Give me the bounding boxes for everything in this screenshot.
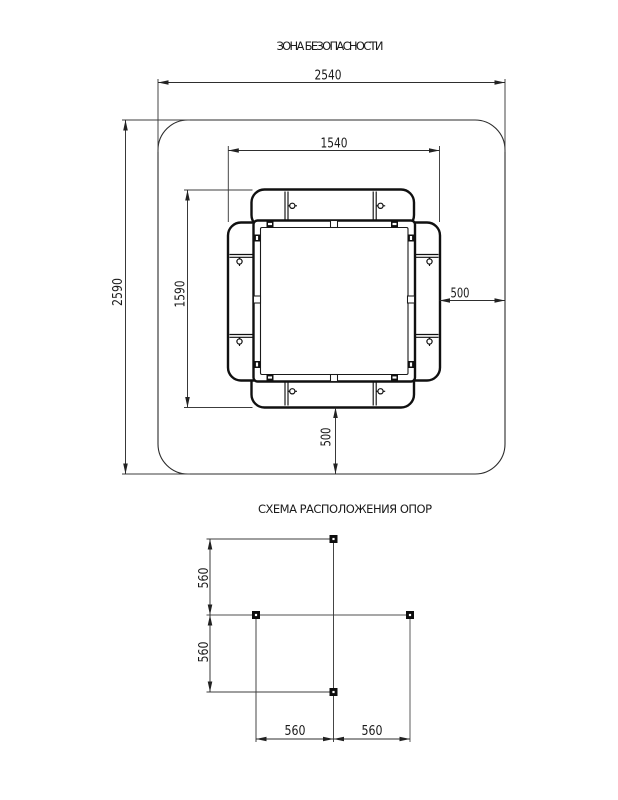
support-post-bottom xyxy=(330,688,338,696)
supports-figure: СХЕМА РАСПОЛОЖЕНИЯ ОПОР xyxy=(197,502,432,742)
dim-label-horizontal-left: 560 xyxy=(285,724,306,739)
support-post-top xyxy=(330,535,338,543)
dim-label-vertical-lower: 560 xyxy=(197,642,212,663)
supports-title: СХЕМА РАСПОЛОЖЕНИЯ ОПОР xyxy=(258,502,432,516)
drawing-canvas: ЗОНА БЕЗОПАСНОСТИ xyxy=(0,0,618,800)
sandbox-frame-outer xyxy=(254,221,416,382)
dim-label-outer-height: 2590 xyxy=(111,278,126,306)
dimension-lines-figure2 xyxy=(210,539,410,739)
technical-drawing: ЗОНА БЕЗОПАСНОСТИ xyxy=(0,0,618,800)
dim-label-horizontal-right: 560 xyxy=(362,724,383,739)
support-post-right xyxy=(406,611,414,619)
support-post-left xyxy=(252,611,260,619)
dim-label-vertical-upper: 560 xyxy=(197,568,212,589)
construction-lines-figure2 xyxy=(207,539,415,742)
safety-zone-figure: ЗОНА БЕЗОПАСНОСТИ xyxy=(111,39,505,474)
dim-label-inner-width: 1540 xyxy=(321,137,348,152)
dim-label-outer-width: 2540 xyxy=(315,69,342,84)
dim-label-inner-height: 1590 xyxy=(174,281,189,308)
dim-label-side-clearance: 500 xyxy=(451,287,470,302)
safety-zone-title: ЗОНА БЕЗОПАСНОСТИ xyxy=(277,39,384,53)
dim-label-bottom-clearance: 500 xyxy=(320,428,335,447)
